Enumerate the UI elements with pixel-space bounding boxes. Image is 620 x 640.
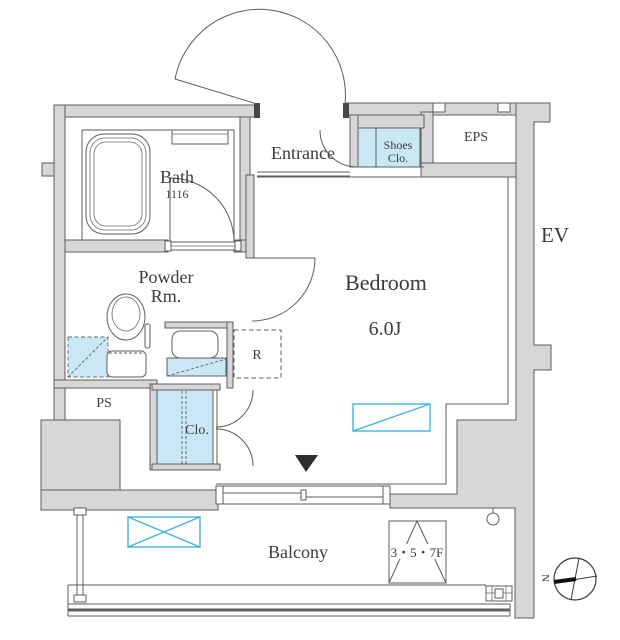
ac-outdoor-unit-symbol xyxy=(128,517,200,547)
toilet-bowl xyxy=(107,294,145,340)
closet-label: Clo. xyxy=(185,423,209,438)
balcony-railing xyxy=(68,585,512,616)
bath-door-rail xyxy=(165,241,241,251)
elevator-label: EV xyxy=(541,223,569,247)
closet-left-wall xyxy=(150,384,157,470)
washbasin-bowl xyxy=(172,331,218,358)
ac-unit-diagonal xyxy=(353,404,430,431)
shoes-closet-top-wall xyxy=(350,115,424,128)
powder-room: Powder Rm. xyxy=(68,258,315,377)
bedroom-size-label: 6.0J xyxy=(369,318,402,340)
left-wall-protrusion xyxy=(42,163,54,176)
drain-circle xyxy=(487,513,499,525)
door-jamb xyxy=(254,103,260,118)
top-wall-left xyxy=(54,105,258,117)
entrance-hall: Entrance xyxy=(271,143,335,163)
floor-plan: Bath 1116 Powder Rm. Entrance xyxy=(0,0,620,640)
bath-counter xyxy=(172,130,228,144)
powder-room-label-line2: Rm. xyxy=(151,286,182,306)
bath-door-rail-cap xyxy=(165,241,171,251)
powder-bottom-wall xyxy=(54,380,157,388)
eps-panel-notch xyxy=(433,103,445,112)
bath-label: Bath xyxy=(160,167,194,187)
compass: N xyxy=(539,558,597,600)
entrance-door-arc xyxy=(175,9,345,104)
shoes-closet-label-line2: Clo. xyxy=(388,151,408,165)
balcony-label: Balcony xyxy=(268,542,328,562)
closet-top-wall xyxy=(152,384,220,390)
left-wall xyxy=(54,105,65,422)
outdoor-unit-x xyxy=(128,517,200,547)
door-jamb xyxy=(343,103,349,118)
bedroom: Bedroom 6.0J R xyxy=(234,270,430,472)
powder-room-label-line1: Powder xyxy=(139,267,194,287)
bath-size-label: 1116 xyxy=(165,187,188,201)
ac-indoor-unit-symbol xyxy=(353,404,430,431)
bath-door-rail-cap xyxy=(235,241,241,251)
bath-room: Bath 1116 xyxy=(82,130,241,251)
grate-inner xyxy=(495,589,503,598)
basin-niche-top-wall xyxy=(165,322,233,328)
eps-bottom-wall xyxy=(421,163,516,177)
toilet-tank xyxy=(107,351,146,377)
toilet-handle xyxy=(145,324,150,348)
washer-space xyxy=(68,337,108,377)
bathtub xyxy=(86,134,150,234)
pipe-space-label: PS xyxy=(96,396,112,411)
toilet xyxy=(107,294,150,377)
floor-availability-label: 3・5・7F xyxy=(391,545,444,560)
ps-structural-block xyxy=(41,420,120,494)
window-cap-left xyxy=(216,486,223,504)
compass-north-label: N xyxy=(539,574,551,582)
eps-label: EPS xyxy=(464,130,488,145)
bath-bottom-wall-left xyxy=(65,240,168,252)
basin-niche-right-wall xyxy=(227,322,233,388)
shoes-closet: Shoes Clo. xyxy=(320,128,420,167)
bedroom-label: Bedroom xyxy=(345,270,427,295)
shoes-closet-left-wall xyxy=(350,115,358,167)
drain-grate xyxy=(486,586,512,601)
partition-cap-bottom xyxy=(74,595,86,602)
hall-bedroom-wall xyxy=(246,175,254,258)
floor-note-box: 3・5・7F xyxy=(389,521,446,583)
closet-door-arcs xyxy=(216,390,253,466)
partition-cap-top xyxy=(74,508,86,515)
direction-triangle xyxy=(295,455,318,472)
sliding-window xyxy=(216,484,390,504)
balcony: Balcony 3・5・7F xyxy=(68,508,512,616)
entrance-step-edge xyxy=(257,172,350,176)
floor-plan-svg: Bath 1116 Powder Rm. Entrance xyxy=(0,0,620,640)
bottom-wall-band xyxy=(41,490,218,510)
washbasin xyxy=(167,331,226,376)
powder-room-door-arc xyxy=(252,258,315,321)
partition-panel xyxy=(77,510,83,600)
entrance-door xyxy=(175,9,349,118)
window-lock xyxy=(301,490,306,500)
washbasin-cabinet xyxy=(167,358,226,376)
refrigerator-label: R xyxy=(252,348,262,363)
compass-needle xyxy=(554,579,576,582)
eps-panel-notch xyxy=(498,103,510,112)
closet-bottom-wall xyxy=(152,464,220,470)
shoes-closet-label-line1: Shoes xyxy=(384,138,413,152)
entrance-door-leaf xyxy=(175,79,257,104)
closet: Clo. xyxy=(157,390,253,466)
window-cap-right xyxy=(383,486,390,504)
balcony-partition xyxy=(74,508,86,602)
entrance-label: Entrance xyxy=(271,143,335,163)
